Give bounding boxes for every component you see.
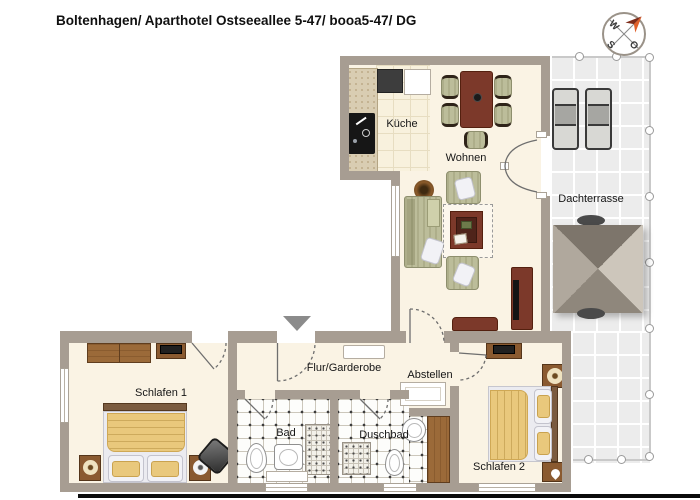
door-leaf	[360, 399, 380, 419]
french-door-leaf	[505, 166, 537, 192]
door-swing-arc	[410, 309, 444, 343]
room-label-abstellen: Abstellen	[402, 369, 458, 381]
room-label-dachterrasse: Dachterrasse	[548, 193, 634, 205]
floorplan-canvas: Küche Wohnen Dachterrasse Flur/Garderobe…	[0, 0, 700, 500]
bottom-border-line	[78, 494, 700, 498]
room-label-schlafen1: Schlafen 1	[128, 387, 194, 399]
page-title: Boltenhagen/ Aparthotel Ostseeallee 5-47…	[56, 13, 416, 28]
french-door-leaf	[505, 140, 537, 166]
room-label-bad: Bad	[266, 427, 306, 439]
room-label-kueche: Küche	[374, 118, 430, 130]
door-swing-arc	[459, 355, 486, 380]
door-leaf	[459, 353, 486, 355]
door-swing-arc	[380, 399, 388, 419]
room-label-schlafen2: Schlafen 2	[466, 461, 532, 473]
room-label-duschbad: Duschbad	[352, 429, 416, 441]
compass-icon: W S O	[598, 8, 650, 60]
door-leaf	[245, 399, 265, 419]
door-swing-arc	[265, 399, 273, 419]
entrance-arrow-icon	[283, 316, 311, 331]
room-label-wohnen: Wohnen	[435, 152, 497, 164]
door-leaf	[192, 343, 214, 369]
door-overlay	[0, 0, 700, 500]
door-swing-arc	[214, 343, 226, 369]
room-label-flur: Flur/Garderobe	[298, 362, 390, 374]
